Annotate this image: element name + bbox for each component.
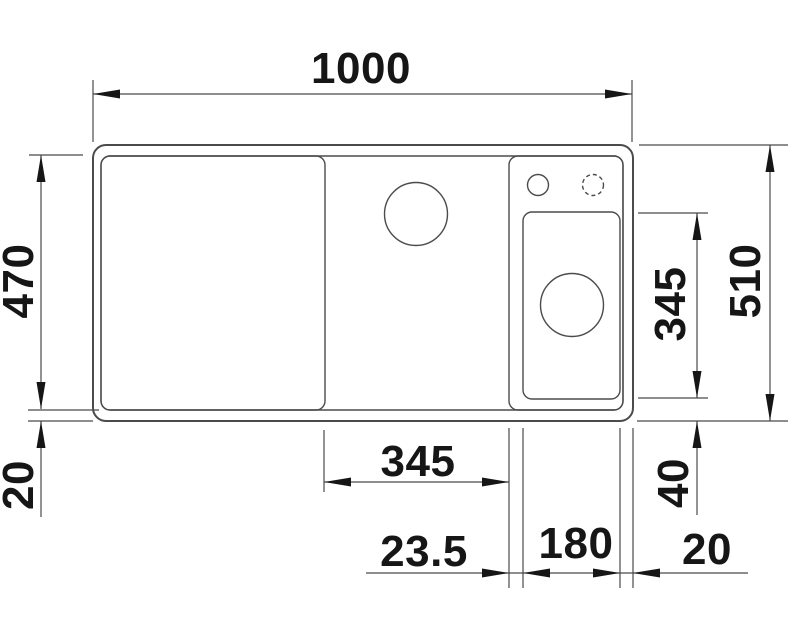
dimension-basin-depth: 470 <box>0 155 83 409</box>
dimension-half-bowl-rear-offset: 40 <box>649 421 702 515</box>
dimension-label-rim-right-offset: 20 <box>682 525 732 574</box>
dimension-label-overall-depth: 510 <box>721 244 770 319</box>
dimension-half-bowl-depth: 345 <box>638 213 708 398</box>
arrowhead-left <box>633 569 660 578</box>
dimension-label-overall-width: 1000 <box>311 44 411 93</box>
arrowhead-up <box>766 145 775 172</box>
arrowhead-left <box>523 569 550 578</box>
dimension-label-basin-depth: 470 <box>0 244 43 319</box>
dimension-label-half-bowl-rear-offset: 40 <box>649 458 698 508</box>
arrowhead-right <box>605 90 632 99</box>
arrowhead-left <box>93 90 120 99</box>
arrowhead-up <box>693 421 702 448</box>
sink-outer-outline <box>93 145 633 421</box>
main-bowl-drain-circle <box>385 183 448 246</box>
dimension-label-half-bowl-width: 180 <box>539 519 614 568</box>
drawing-canvas: 1000 470 20 345 40 510 <box>0 0 800 640</box>
faucet-hole-dashed <box>583 175 604 196</box>
arrowhead-down <box>693 371 702 398</box>
arrowhead-right <box>593 569 620 578</box>
dimension-main-bowl-width: 345 <box>324 430 509 492</box>
sink-dimension-drawing: 1000 470 20 345 40 510 <box>0 0 800 640</box>
dimension-label-bowl-divider-gap: 23.5 <box>380 527 468 576</box>
sink-inner-rim <box>101 156 623 410</box>
dimension-label-main-bowl-width: 345 <box>381 437 456 486</box>
arrowhead-down <box>37 382 46 409</box>
right-compartment <box>509 156 623 410</box>
dimension-rim-bottom-offset: 20 <box>0 410 99 517</box>
arrowhead-right <box>482 478 509 487</box>
faucet-hole-solid <box>528 175 549 196</box>
dimension-label-half-bowl-depth: 345 <box>646 267 695 342</box>
arrowhead-up <box>37 155 46 182</box>
sink-body <box>93 145 633 421</box>
arrowhead-right <box>482 569 509 578</box>
half-bowl <box>523 212 620 399</box>
arrowhead-up <box>693 213 702 240</box>
arrowhead-down <box>766 394 775 421</box>
arrowhead-up <box>37 421 46 448</box>
drainboard-section <box>101 156 325 410</box>
dimension-overall-width: 1000 <box>93 44 632 142</box>
dimension-label-rim-bottom-offset: 20 <box>0 460 43 510</box>
half-bowl-drain-circle <box>541 274 604 337</box>
arrowhead-left <box>324 478 351 487</box>
